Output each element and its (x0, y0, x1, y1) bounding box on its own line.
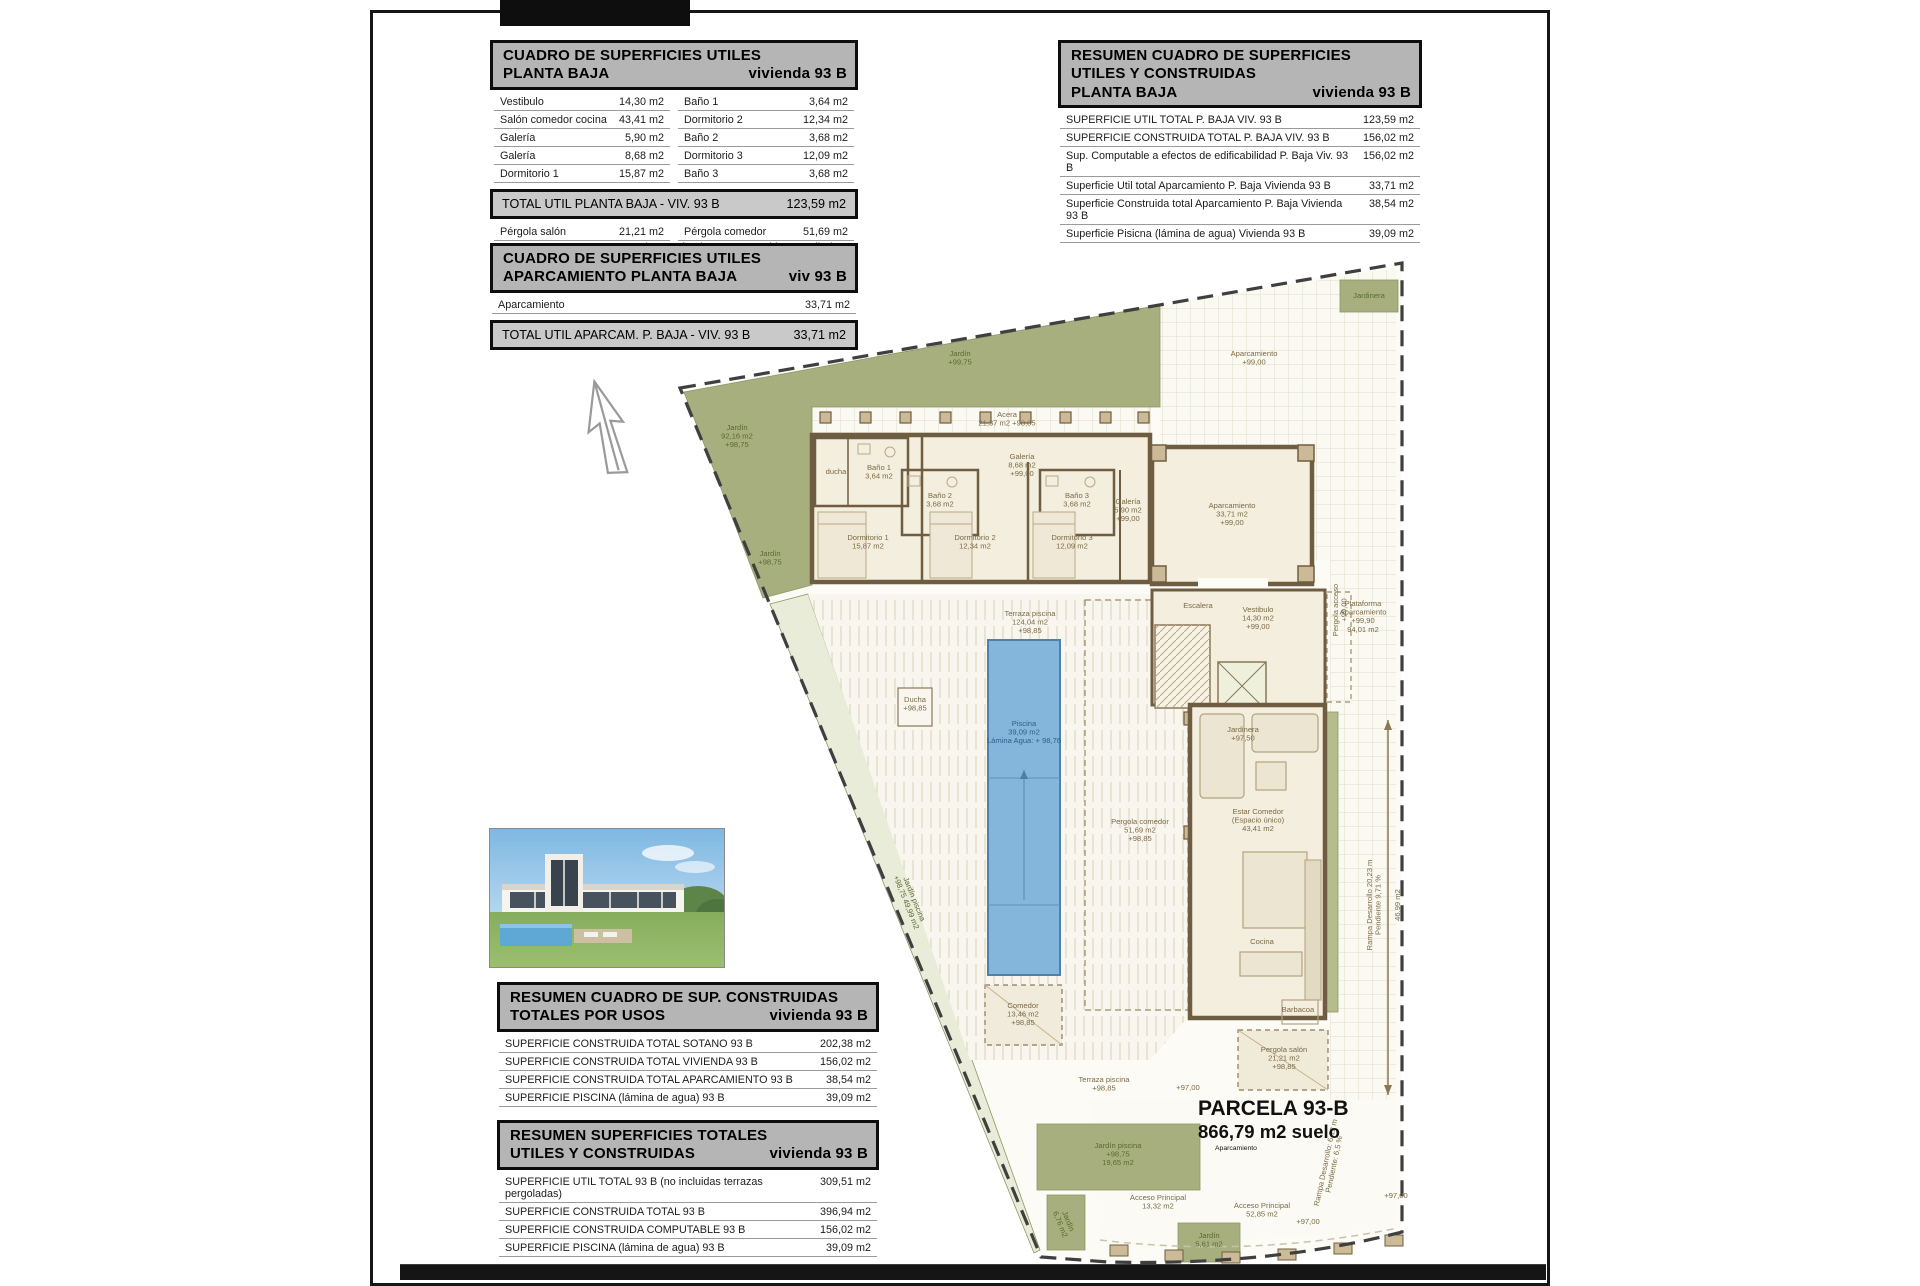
plan-label: ducha (826, 467, 847, 476)
plan-label: Barbacoa (1282, 1005, 1315, 1014)
plan-label: +97,00 (1384, 1191, 1407, 1200)
plan-label: Dormitorio 212,34 m2 (954, 533, 995, 551)
table-row: SUPERFICIE PISCINA (lámina de agua) 93 B… (499, 1089, 877, 1107)
table-resumen-superficies-totales: RESUMEN SUPERFICIES TOTALESUTILES Y CONS… (497, 1120, 879, 1257)
table-row: Superficie Construida total Aparcamiento… (1060, 195, 1420, 225)
coffee-table (1256, 762, 1286, 790)
table-row: SUPERFICIE CONSTRUIDA TOTAL P. BAJA VIV.… (1060, 129, 1420, 147)
north-arrow-icon (566, 372, 646, 484)
table-header: RESUMEN CUADRO DE SUP. CONSTRUIDASTOTALE… (497, 982, 879, 1032)
table-row: Aparcamiento33,71 m2 (492, 296, 856, 314)
table-superficies-utiles-planta-baja: CUADRO DE SUPERFICIES UTILESPLANTA BAJAv… (490, 40, 858, 259)
table-row: SUPERFICIE UTIL TOTAL P. BAJA VIV. 93 B1… (1060, 111, 1420, 129)
table-row: Superficie Util total Aparcamiento P. Ba… (1060, 177, 1420, 195)
plan-label: Baño 13,64 m2 (865, 463, 892, 481)
bedroom-wing (812, 435, 1150, 582)
plan-label: Comedor13,46 m2+98,85 (1007, 1001, 1039, 1027)
table-row: SUPERFICIE CONSTRUIDA TOTAL SOTANO 93 B2… (499, 1035, 877, 1053)
plan-label: Escalera (1183, 601, 1213, 610)
plan-label: +97,00 (1176, 1083, 1199, 1092)
plan-sheet: { "colors":{ "paper":"#ffffff","table_he… (0, 0, 1920, 1280)
stairs (1155, 625, 1210, 708)
plan-label: Jardín+98,75 (758, 549, 781, 567)
table-row: Dormitorio 115,87 m2Baño 33,68 m2 (490, 165, 858, 183)
table-row: Sup. Computable a efectos de edificabili… (1060, 147, 1420, 177)
kitchen-counter (1305, 860, 1321, 1000)
table-row: Galería5,90 m2Baño 23,68 m2 (490, 129, 858, 147)
plan-label: Ducha+98,85 (903, 695, 926, 713)
table-total-row: TOTAL UTIL PLANTA BAJA - VIV. 93 B123,59… (490, 189, 858, 219)
sofa (1252, 714, 1318, 752)
pool (988, 640, 1060, 975)
table-row: SUPERFICIE UTIL TOTAL 93 B (no incluidas… (499, 1173, 877, 1203)
dining-table (1243, 852, 1307, 928)
plan-label: Galería8,68 m2+99,00 (1008, 452, 1035, 478)
plan-label: Jardinera+97,50 (1227, 725, 1259, 743)
table-row: SUPERFICIE CONSTRUIDA COMPUTABLE 93 B156… (499, 1221, 877, 1239)
plan-label: Cocina (1250, 937, 1274, 946)
plan-label: Baño 23,68 m2 (926, 491, 953, 509)
table-total-row: TOTAL UTIL APARCAM. P. BAJA - VIV. 93 B3… (490, 320, 858, 350)
floor-plan: Jardín+99,75Jardín92,16 m2+98,75Jardín+9… (660, 240, 1420, 1270)
plan-label: Jardín5,61 m2 (1195, 1231, 1222, 1249)
table-resumen-construidas-por-usos: RESUMEN CUADRO DE SUP. CONSTRUIDASTOTALE… (497, 982, 879, 1107)
plan-label: +97,00 (1296, 1217, 1319, 1226)
table-header: CUADRO DE SUPERFICIES UTILESPLANTA BAJAv… (490, 40, 858, 90)
table-row: SUPERFICIE CONSTRUIDA TOTAL APARCAMIENTO… (499, 1071, 877, 1089)
table-row: Vestibulo14,30 m2Baño 13,64 m2 (490, 93, 858, 111)
table-row: SUPERFICIE CONSTRUIDA TOTAL VIVIENDA 93 … (499, 1053, 877, 1071)
plan-label: 46,99 m2 (1393, 889, 1402, 921)
table-header: RESUMEN CUADRO DE SUPERFICIESUTILES Y CO… (1058, 40, 1422, 108)
table-row: Pérgola salón21,21 m2Pérgola comedor51,6… (490, 223, 858, 241)
table-header: RESUMEN SUPERFICIES TOTALESUTILES Y CONS… (497, 1120, 879, 1170)
title-block-crop-top (500, 0, 690, 26)
table-row: Superficie Pisicna (lámina de agua) Vivi… (1060, 225, 1420, 243)
plan-label: Vestibulo14,30 m2+99,00 (1242, 605, 1274, 631)
plan-label: Baño 33,68 m2 (1063, 491, 1090, 509)
table-resumen-utiles-construidas-pb: RESUMEN CUADRO DE SUPERFICIESUTILES Y CO… (1058, 40, 1422, 243)
parcela-title: PARCELA 93-B (1198, 1097, 1349, 1120)
parcela-area: 866,79 m2 suelo (1198, 1121, 1340, 1142)
table-row: Salón comedor cocina43,41 m2Dormitorio 2… (490, 111, 858, 129)
table-superficies-utiles-aparcamiento: CUADRO DE SUPERFICIES UTILESAPARCAMIENTO… (490, 243, 858, 354)
title-block-crop-bottom (400, 1264, 1546, 1280)
table-row: Galería8,68 m2Dormitorio 312,09 m2 (490, 147, 858, 165)
plan-label: Jardinera (1353, 291, 1385, 300)
villa-photo (489, 828, 725, 968)
table-row: SUPERFICIE CONSTRUIDA TOTAL 93 B396,94 m… (499, 1203, 877, 1221)
plan-label: Galería5,90 m2+99,00 (1114, 497, 1141, 523)
kitchen-island (1240, 952, 1302, 976)
plan-label: Dormitorio 115,87 m2 (847, 533, 888, 551)
table-header: CUADRO DE SUPERFICIES UTILESAPARCAMIENTO… (490, 243, 858, 293)
table-row: SUPERFICIE PISCINA (lámina de agua) 93 B… (499, 1239, 877, 1257)
plan-label: Jardín+99,75 (948, 349, 971, 367)
parcela-sub: Aparcamiento (1215, 1145, 1257, 1152)
plan-label: Dormitorio 312,09 m2 (1051, 533, 1092, 551)
